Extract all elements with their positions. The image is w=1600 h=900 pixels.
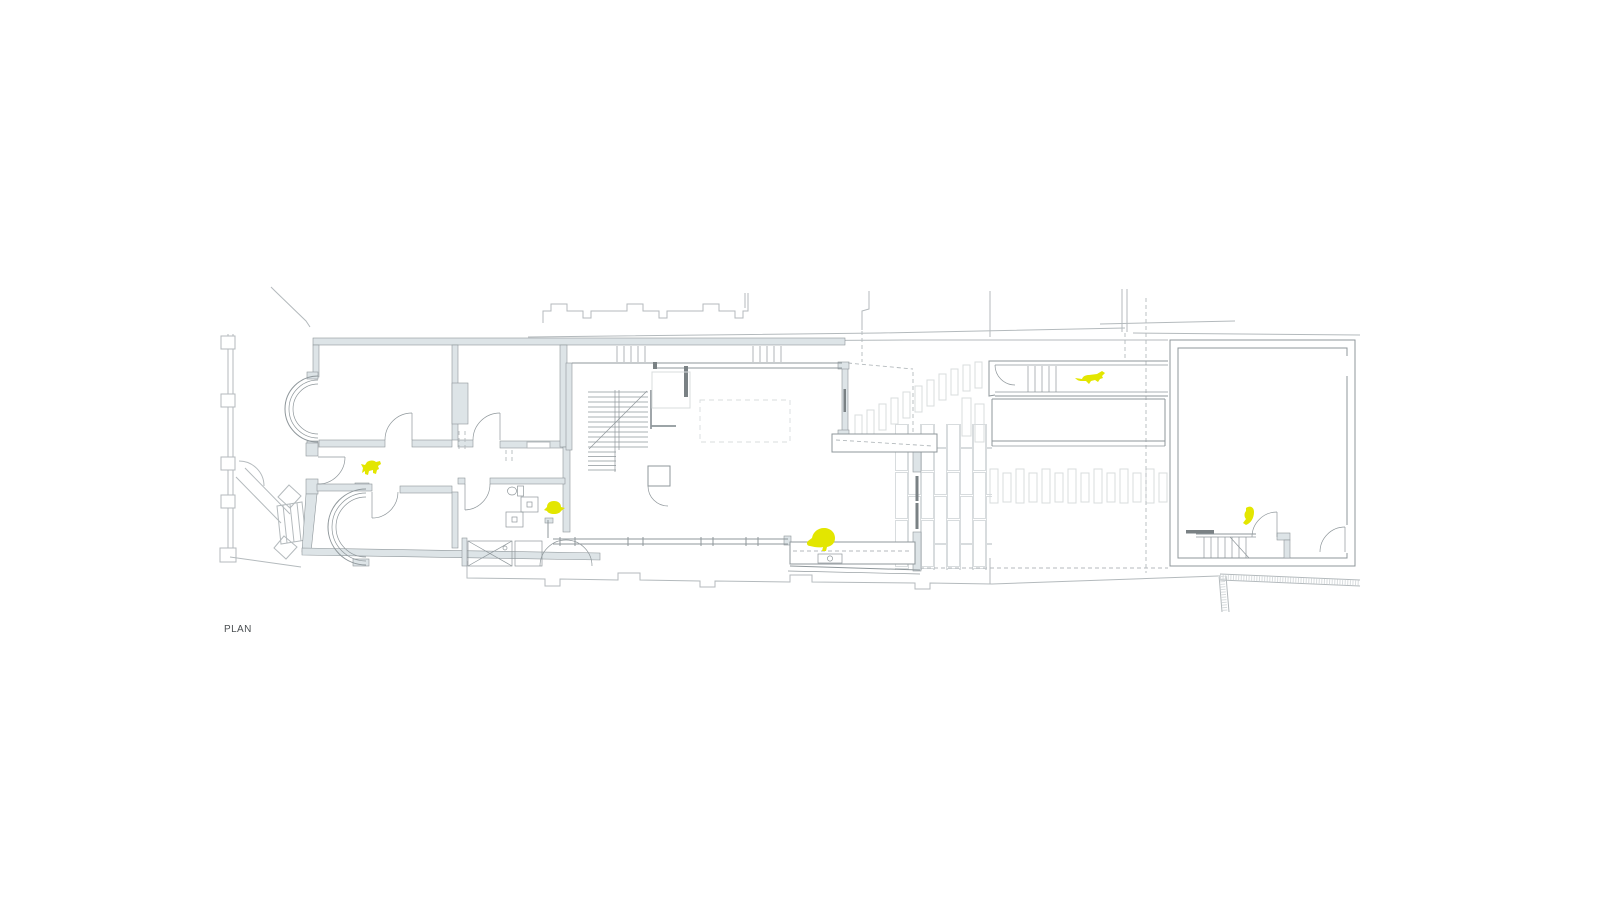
garden-studio <box>1170 340 1355 566</box>
garden-wall-pier <box>221 336 235 349</box>
open-plan-room <box>548 363 937 574</box>
plan-sheet: PLAN <box>0 0 1600 900</box>
vanity-unit <box>506 512 523 527</box>
kitchen-island-dashed <box>700 400 790 442</box>
neighbour-outline-top <box>543 293 748 323</box>
paver-row <box>990 469 1167 503</box>
glazed-door-leaf <box>844 389 847 412</box>
chimney-breast <box>452 383 468 424</box>
garden-wall-pier <box>221 457 235 470</box>
vanity-unit <box>521 497 538 512</box>
garden-bench <box>832 434 937 452</box>
doormat <box>1186 530 1214 534</box>
flue <box>684 366 688 397</box>
garden-wall-pier <box>220 548 236 562</box>
corridor-steps <box>617 346 781 362</box>
main-stair <box>588 390 648 472</box>
dog-figure <box>361 461 381 476</box>
passage-steps <box>1028 366 1056 392</box>
gate-swing-arc <box>239 461 264 486</box>
tortoise-figure <box>544 501 565 514</box>
bay-window-front <box>285 376 318 442</box>
bathroom <box>459 431 542 566</box>
house-walls <box>302 338 937 571</box>
understair-cupboard <box>648 466 670 486</box>
glazed-door-leaf <box>916 476 919 501</box>
garden-wall-pier <box>221 394 235 407</box>
glazed-door-leaf <box>916 503 919 529</box>
stair-core <box>572 346 842 506</box>
party-wall-hatch <box>1220 577 1360 583</box>
glazing-mullions <box>560 537 758 546</box>
plan-label: PLAN <box>224 624 252 635</box>
toilet <box>508 487 517 495</box>
animal-figures <box>361 371 1254 551</box>
cat-figure <box>1075 371 1105 384</box>
floor-plan-svg <box>0 0 1600 900</box>
planter <box>992 399 1165 446</box>
garden-wall-pier <box>221 495 235 508</box>
gate-swing-arc <box>995 365 1015 385</box>
garden-passage <box>989 361 1168 446</box>
bay-windows <box>285 376 366 565</box>
party-wall-north <box>313 338 845 345</box>
